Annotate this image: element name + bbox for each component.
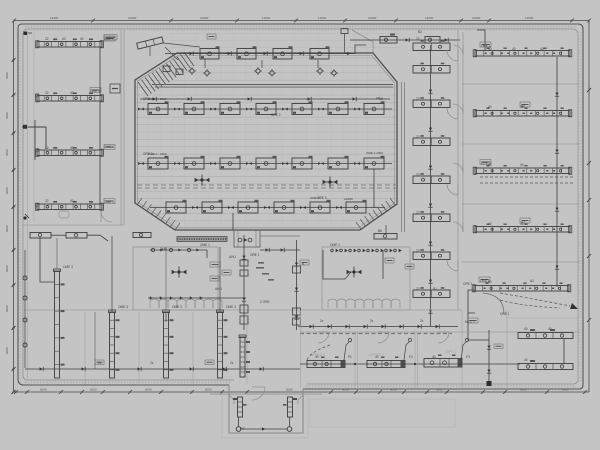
svg-text:12000: 12000: [525, 16, 534, 20]
svg-text:ORE 1: ORE 1: [500, 312, 510, 316]
svg-text:B: B: [302, 262, 304, 266]
svg-text:22: 22: [416, 173, 420, 177]
svg-text:40: 40: [488, 105, 492, 109]
svg-text:6000: 6000: [286, 388, 293, 392]
svg-text:2x: 2x: [420, 319, 424, 323]
svg-text:OME 1: OME 1: [330, 243, 340, 247]
svg-text:2x: 2x: [370, 319, 374, 323]
svg-text:40: 40: [488, 280, 492, 284]
svg-text:40: 40: [80, 37, 84, 41]
svg-text:2 ORE: 2 ORE: [260, 300, 270, 304]
svg-text:6000: 6000: [5, 347, 9, 354]
svg-text:ORE 3: ORE 3: [317, 196, 327, 200]
svg-text:ORE 3: ORE 3: [143, 152, 153, 156]
svg-text:6000: 6000: [90, 388, 97, 392]
svg-text:6000: 6000: [342, 388, 349, 392]
svg-text:2x40: 2x40: [160, 247, 167, 251]
svg-text:6000: 6000: [145, 388, 152, 392]
svg-text:12000: 12000: [50, 16, 59, 20]
svg-text:6000: 6000: [5, 225, 9, 232]
svg-text:OPE 1: OPE 1: [463, 282, 473, 286]
svg-text:6000: 6000: [5, 305, 9, 312]
svg-text:A3: A3: [530, 279, 534, 283]
svg-text:40: 40: [70, 91, 74, 95]
svg-text:6000: 6000: [5, 265, 9, 272]
svg-text:22: 22: [416, 135, 420, 139]
svg-text:22: 22: [416, 97, 420, 101]
svg-text:OME 1: OME 1: [90, 89, 100, 93]
svg-text:OME 1: OME 1: [104, 37, 114, 41]
svg-text:A6: A6: [379, 97, 383, 101]
svg-text:12000: 12000: [200, 16, 209, 20]
svg-text:2x: 2x: [150, 361, 154, 365]
svg-text:B2: B2: [418, 30, 422, 34]
svg-text:12000: 12000: [262, 16, 271, 20]
svg-text:OME 3: OME 3: [172, 305, 182, 309]
svg-text:6000: 6000: [562, 388, 569, 392]
svg-text:22: 22: [45, 37, 49, 41]
svg-text:40: 40: [62, 37, 66, 41]
svg-text:40: 40: [520, 105, 524, 109]
svg-text:40: 40: [432, 355, 436, 359]
svg-text:MCC 1: MCC 1: [465, 320, 475, 324]
svg-text:40: 40: [70, 199, 74, 203]
svg-text:40: 40: [375, 355, 379, 359]
svg-text:OME F↓ 2300: OME F↓ 2300: [148, 97, 167, 101]
svg-text:22: 22: [45, 146, 49, 150]
svg-text:40: 40: [315, 355, 319, 359]
svg-text:6000: 6000: [5, 112, 9, 119]
svg-text:OME 3: OME 3: [118, 305, 128, 309]
svg-text:40: 40: [488, 222, 492, 226]
svg-text:40: 40: [520, 163, 524, 167]
svg-text:OFF 3: OFF 3: [446, 350, 456, 354]
svg-text:40: 40: [488, 163, 492, 167]
svg-text:OME 1: OME 1: [104, 145, 114, 149]
svg-text:6000: 6000: [40, 388, 47, 392]
svg-text:22: 22: [416, 249, 420, 253]
svg-text:ORE 2: ORE 2: [271, 113, 281, 117]
svg-text:6000: 6000: [205, 388, 212, 392]
svg-text:2x: 2x: [230, 361, 234, 365]
svg-text:40: 40: [70, 146, 74, 150]
svg-text:12000: 12000: [368, 16, 377, 20]
svg-text:2x: 2x: [320, 319, 324, 323]
svg-text:OME 3: OME 3: [226, 305, 236, 309]
svg-text:6000: 6000: [520, 388, 527, 392]
svg-text:40: 40: [488, 47, 492, 51]
svg-text:OME 3: OME 3: [63, 265, 73, 269]
svg-text:B6: B6: [378, 229, 382, 233]
svg-text:12000: 12000: [318, 16, 327, 20]
svg-text:6000: 6000: [5, 149, 9, 156]
svg-text:B1: B1: [433, 287, 437, 291]
svg-text:PIT: PIT: [240, 427, 245, 431]
svg-text:AHU: AHU: [229, 255, 236, 259]
svg-text:22: 22: [45, 91, 49, 95]
svg-text:OME 1: OME 1: [104, 200, 114, 204]
svg-text:ORE: ORE: [143, 97, 150, 101]
svg-text:12000: 12000: [128, 16, 137, 20]
svg-text:22: 22: [416, 287, 420, 291]
svg-text:40: 40: [520, 222, 524, 226]
svg-text:40: 40: [524, 358, 528, 362]
svg-text:F1: F1: [348, 355, 352, 359]
svg-text:6000: 6000: [5, 72, 9, 79]
svg-text:6000: 6000: [390, 388, 397, 392]
svg-text:22: 22: [45, 199, 49, 203]
svg-text:22: 22: [416, 37, 420, 41]
svg-text:40: 40: [540, 47, 544, 51]
svg-text:40: 40: [512, 47, 516, 51]
svg-text:OME F 2300: OME F 2300: [366, 151, 383, 155]
svg-text:40: 40: [524, 327, 528, 331]
svg-text:12000: 12000: [425, 16, 434, 20]
svg-text:OME 1: OME 1: [200, 243, 210, 247]
svg-text:F2: F2: [409, 355, 413, 359]
svg-text:ORE 1: ORE 1: [250, 253, 260, 257]
svg-text:12000: 12000: [472, 16, 481, 20]
svg-text:A2300: A2300: [344, 197, 353, 201]
svg-text:2x: 2x: [98, 361, 102, 365]
svg-text:40: 40: [548, 327, 552, 331]
svg-text:22: 22: [416, 211, 420, 215]
svg-text:6000: 6000: [5, 187, 9, 194]
svg-text:F3: F3: [466, 355, 470, 359]
svg-text:6000: 6000: [436, 388, 443, 392]
svg-text:AH 1: AH 1: [215, 287, 222, 291]
